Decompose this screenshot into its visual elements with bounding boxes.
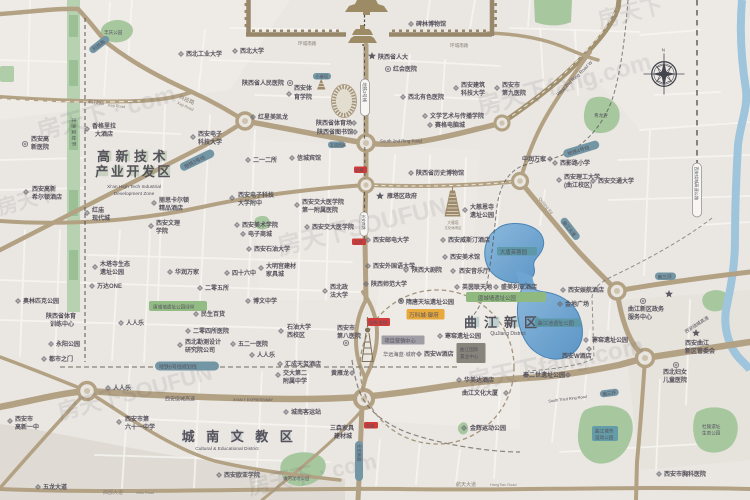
svg-text:希尔顿酒店: 希尔顿酒店 (32, 193, 62, 201)
svg-text:西安高新: 西安高新 (32, 185, 56, 193)
svg-text:青龙寺: 青龙寺 (594, 112, 608, 119)
svg-text:唐城墙遗址公园: 唐城墙遗址公园 (478, 294, 516, 302)
svg-text:城南文教区: 城南文教区 (182, 429, 305, 444)
svg-text:西安文理: 西安文理 (156, 219, 180, 227)
svg-text:置业中心: 置业中心 (460, 353, 479, 360)
svg-text:西北妇女: 西北妇女 (663, 368, 687, 376)
svg-text:第九医院: 第九医院 (501, 89, 526, 97)
svg-text:奥林匹克公园: 奥林匹克公园 (23, 297, 59, 305)
svg-text:Xi'an High Tech Industrial: Xi'an High Tech Industrial (107, 184, 161, 190)
svg-text:精品酒店: 精品酒店 (159, 204, 183, 212)
svg-text:陕西省图书馆: 陕西省图书馆 (317, 128, 353, 136)
svg-text:唐城墙遗址公园绿带: 唐城墙遗址公园绿带 (153, 304, 195, 311)
svg-text:盛美利亚酒店: 盛美利亚酒店 (501, 283, 537, 291)
svg-text:高新技术: 高新技术 (97, 149, 171, 164)
svg-text:红会医院: 红会医院 (393, 65, 417, 73)
svg-text:西安音乐厅: 西安音乐厅 (459, 267, 489, 275)
svg-text:建材城: 建材城 (334, 432, 352, 440)
svg-text:华润万家: 华润万家 (175, 268, 199, 276)
svg-text:杜陵遗址: 杜陵遗址 (702, 423, 721, 430)
svg-text:小雁塔: 小雁塔 (316, 73, 329, 80)
svg-text:陕西省人民医院: 陕西省人民医院 (242, 79, 284, 87)
svg-text:环城南路: 环城南路 (450, 42, 469, 49)
svg-text:曲江文化大厦: 曲江文化大厦 (462, 389, 499, 397)
svg-text:华远海蓝·城府: 华远海蓝·城府 (383, 350, 416, 358)
svg-text:西北勘测设计: 西北勘测设计 (185, 338, 221, 346)
svg-text:西安欧亚学院: 西安欧亚学院 (224, 471, 260, 479)
svg-text:地铁6号线规划线: 地铁6号线规划线 (159, 363, 197, 370)
svg-text:城南客运站: 城南客运站 (291, 408, 321, 416)
svg-text:西北大学: 西北大学 (240, 47, 264, 55)
svg-text:西安市: 西安市 (15, 415, 33, 423)
svg-text:曲江新区: 曲江新区 (464, 315, 544, 330)
svg-text:西安交通大学: 西安交通大学 (598, 177, 634, 185)
svg-text:五龙大道: 五龙大道 (43, 483, 67, 491)
svg-text:信城宾馆: 信城宾馆 (297, 154, 321, 162)
svg-text:西北政: 西北政 (330, 283, 349, 291)
svg-text:训练中心: 训练中心 (50, 320, 74, 328)
svg-text:万科城·御府: 万科城·御府 (409, 311, 439, 319)
svg-text:环城南路: 环城南路 (298, 40, 317, 47)
svg-text:人人乐: 人人乐 (113, 384, 131, 392)
svg-text:曲江城市: 曲江城市 (595, 428, 614, 435)
svg-text:项目营销中心: 项目营销中心 (385, 336, 416, 344)
svg-text:曲江新区政务: 曲江新区政务 (628, 305, 665, 313)
svg-text:陕西省历史博物馆: 陕西省历史博物馆 (416, 169, 464, 177)
svg-text:丰庆公园: 丰庆公园 (104, 29, 123, 36)
svg-text:西安高: 西安高 (31, 135, 49, 143)
svg-text:西安建筑: 西安建筑 (461, 81, 485, 89)
svg-text:QuJiang District: QuJiang District (490, 331, 526, 337)
svg-text:都市之门: 都市之门 (48, 355, 73, 363)
svg-text:雁塔区政府: 雁塔区政府 (387, 192, 417, 200)
svg-text:石油大学: 石油大学 (286, 323, 311, 331)
svg-text:航天大道: 航天大道 (456, 481, 476, 488)
svg-text:沣惠渠绿带: 沣惠渠绿带 (70, 118, 77, 147)
svg-text:西部大道: 西部大道 (103, 489, 123, 496)
svg-text:西安美术馆: 西安美术馆 (450, 253, 480, 261)
svg-text:South 2nd Ring Road: South 2nd Ring Road (380, 139, 423, 144)
svg-text:西北有色医院: 西北有色医院 (408, 93, 444, 101)
svg-text:西安交大医学院: 西安交大医学院 (302, 198, 344, 206)
svg-text:西安曲江: 西安曲江 (685, 339, 709, 347)
svg-text:Cultural & Educational Distric: Cultural & Educational District (195, 446, 259, 452)
svg-text:民生百货: 民生百货 (201, 310, 225, 318)
svg-text:西安市: 西安市 (502, 81, 520, 89)
svg-text:法大学: 法大学 (330, 291, 348, 299)
svg-text:寒窑遗址公园: 寒窑遗址公园 (444, 332, 481, 340)
svg-text:长安南路: 长安南路 (361, 215, 366, 230)
svg-text:文化休闲区: 文化休闲区 (445, 225, 463, 230)
svg-text:大酒店: 大酒店 (95, 130, 113, 138)
svg-text:科技大学: 科技大学 (461, 89, 485, 97)
svg-text:四十六中: 四十六中 (232, 269, 256, 277)
svg-text:曲江国际: 曲江国际 (460, 346, 479, 353)
svg-text:大明宫建材: 大明宫建材 (266, 262, 296, 270)
svg-text:第八医院: 第八医院 (336, 332, 361, 340)
svg-text:金地广场: 金地广场 (564, 300, 589, 308)
svg-text:西影路小学: 西影路小学 (560, 159, 590, 167)
svg-text:木塔寺生态: 木塔寺生态 (99, 260, 130, 268)
svg-text:XiBu Road: XiBu Road (136, 491, 154, 495)
svg-text:金辉·玺悦: 金辉·玺悦 (369, 319, 388, 326)
svg-text:陕西省体育: 陕西省体育 (46, 312, 76, 320)
svg-text:N: N (662, 48, 665, 53)
svg-text:电子商城: 电子商城 (248, 230, 272, 238)
svg-text:育学院: 育学院 (294, 93, 312, 101)
svg-text:Development Zone: Development Zone (114, 191, 155, 197)
svg-text:西安石油大学: 西安石油大学 (254, 245, 290, 253)
svg-text:六十一中学: 六十一中学 (125, 423, 155, 431)
svg-text:韦曲: 韦曲 (366, 422, 374, 428)
svg-text:陕西师范大学: 陕西师范大学 (371, 280, 407, 288)
svg-text:大学附中: 大学附中 (238, 199, 262, 207)
svg-text:二零四所医院: 二零四所医院 (193, 327, 229, 335)
svg-text:生态公园: 生态公园 (702, 430, 721, 437)
svg-text:科技大学: 科技大学 (198, 138, 222, 146)
svg-text:华美达酒店: 华美达酒店 (464, 376, 494, 384)
svg-text:西安电子科技: 西安电子科技 (238, 191, 275, 199)
svg-text:二一二所: 二一二所 (253, 156, 277, 164)
svg-text:人人乐: 人人乐 (126, 319, 144, 327)
svg-text:万达ONE: 万达ONE (96, 282, 122, 290)
svg-text:西安邮电大学: 西安邮电大学 (373, 236, 409, 244)
svg-text:西安威斯汀酒店: 西安威斯汀酒店 (448, 236, 490, 244)
svg-text:英茵联天地: 英茵联天地 (461, 283, 492, 291)
svg-text:西安美术学院: 西安美术学院 (242, 221, 278, 229)
svg-text:西安交大医学院: 西安交大医学院 (312, 223, 354, 231)
svg-text:西安市第: 西安市第 (125, 415, 149, 423)
svg-text:西安体: 西安体 (294, 84, 313, 92)
svg-text:三爻: 三爻 (355, 240, 363, 245)
svg-text:陕西省人大: 陕西省人大 (378, 53, 408, 61)
svg-text:黄雁龙: 黄雁龙 (331, 369, 349, 377)
svg-text:金辉运动公园: 金辉运动公园 (469, 424, 506, 432)
svg-text:永阳公园: 永阳公园 (55, 340, 80, 348)
svg-text:隋唐天坛遗址公园: 隋唐天坛遗址公园 (406, 298, 454, 306)
svg-text:地铁2号线: 地铁2号线 (361, 83, 368, 103)
svg-text:大唐芙蓉园: 大唐芙蓉园 (500, 248, 527, 256)
svg-text:第一附属医院: 第一附属医院 (301, 206, 338, 214)
svg-text:中润万家: 中润万家 (522, 155, 546, 163)
svg-text:XI'AN T EXPRESSWAY: XI'AN T EXPRESSWAY (233, 398, 274, 402)
svg-text:香格里拉: 香格里拉 (91, 122, 116, 130)
svg-text:西安外国语大学: 西安外国语大学 (373, 262, 415, 270)
svg-text:寒窑遗址公园: 寒窑遗址公园 (591, 336, 628, 344)
svg-text:附属中学: 附属中学 (283, 377, 307, 385)
svg-text:西安W酒店: 西安W酒店 (562, 352, 592, 360)
svg-text:产业开发区: 产业开发区 (95, 164, 173, 179)
svg-text:丽思卡尔顿: 丽思卡尔顿 (159, 196, 189, 204)
svg-text:西北工业大学: 西北工业大学 (186, 50, 222, 58)
svg-text:三森家具: 三森家具 (330, 424, 354, 432)
svg-text:服务中心: 服务中心 (628, 313, 652, 321)
svg-text:陕西省体育场: 陕西省体育场 (316, 119, 352, 127)
svg-text:交大第二: 交大第二 (283, 369, 307, 377)
svg-text:遗址公园: 遗址公园 (99, 268, 124, 276)
svg-text:运动公园: 运动公园 (595, 434, 614, 441)
svg-text:西安W酒店: 西安W酒店 (424, 350, 454, 358)
svg-text:碑林博物馆: 碑林博物馆 (416, 20, 446, 28)
svg-text:学院: 学院 (156, 227, 168, 235)
svg-text:HangTian Road: HangTian Road (490, 483, 516, 487)
svg-text:高新一中: 高新一中 (15, 423, 39, 431)
svg-text:人人乐: 人人乐 (257, 351, 275, 359)
svg-text:现代城: 现代城 (92, 214, 110, 222)
svg-text:赛格电脑城: 赛格电脑城 (434, 121, 465, 129)
svg-text:西安娱航酒店: 西安娱航酒店 (568, 286, 604, 294)
svg-text:西校区: 西校区 (287, 331, 305, 339)
svg-text:友谊西路: 友谊西路 (330, 142, 346, 148)
svg-text:西安绕城高速: 西安绕城高速 (165, 396, 195, 403)
svg-text:西安电子: 西安电子 (198, 130, 222, 138)
svg-text:秦二世遗址公园: 秦二世遗址公园 (522, 371, 565, 379)
svg-text:小寨: 小寨 (356, 167, 364, 173)
svg-text:儿童医院: 儿童医院 (662, 376, 687, 384)
svg-text:博文中学: 博文中学 (253, 297, 277, 305)
svg-text:大慈恩寺: 大慈恩寺 (470, 203, 494, 211)
svg-text:遗址公园: 遗址公园 (469, 211, 494, 219)
svg-text:家具城: 家具城 (266, 270, 284, 278)
svg-text:二零五所: 二零五所 (205, 284, 229, 292)
svg-text:新区管委会: 新区管委会 (685, 347, 716, 355)
svg-text:潏河湿地公园: 潏河湿地公园 (283, 475, 310, 482)
svg-text:文学艺术与传播学院: 文学艺术与传播学院 (429, 112, 484, 120)
svg-text:西安市胸科医院: 西安市胸科医院 (664, 470, 706, 478)
svg-text:红庙: 红庙 (92, 206, 104, 214)
svg-text:汇成天玺酒店: 汇成天玺酒店 (285, 360, 321, 368)
svg-text:西安市: 西安市 (337, 324, 355, 332)
svg-text:(曲江校区): (曲江校区) (564, 181, 592, 189)
svg-text:长安南路: 长安南路 (356, 444, 363, 462)
svg-text:西安绕城高速公路: 西安绕城高速公路 (693, 167, 700, 201)
svg-text:南三环: 南三环 (658, 273, 673, 280)
svg-text:研究院公司: 研究院公司 (185, 346, 215, 354)
svg-text:陕西大剧院: 陕西大剧院 (412, 266, 442, 274)
svg-text:大雁塔: 大雁塔 (447, 220, 459, 225)
svg-text:五二一医院: 五二一医院 (238, 340, 268, 348)
svg-text:新医院: 新医院 (31, 143, 49, 151)
svg-text:红星美凯龙: 红星美凯龙 (258, 113, 288, 121)
